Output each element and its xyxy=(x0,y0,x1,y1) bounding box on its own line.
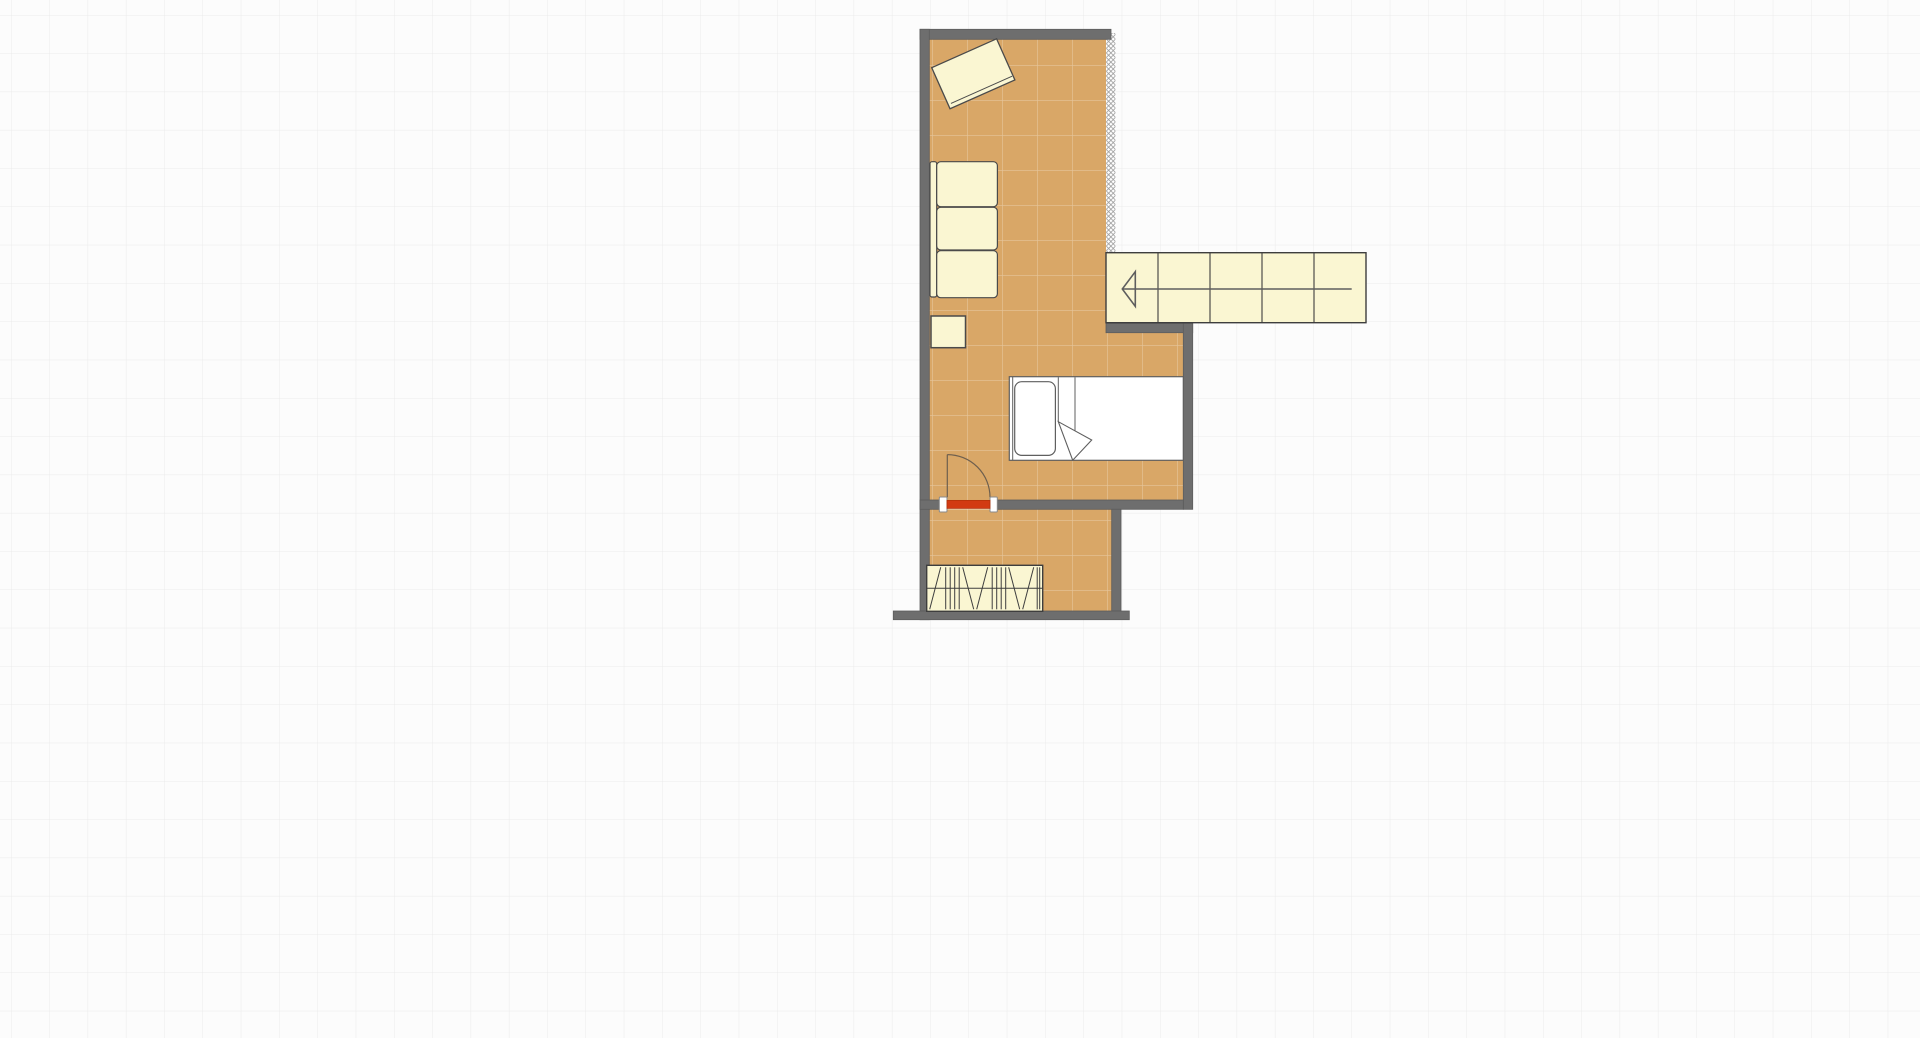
single-bed[interactable] xyxy=(1009,377,1183,461)
sofa-cushion-1 xyxy=(937,162,998,207)
door-leaf[interactable] xyxy=(947,500,990,508)
stairs[interactable] xyxy=(1106,253,1366,323)
sofa-back xyxy=(930,162,937,297)
door-jamb-1 xyxy=(939,497,947,512)
side-table[interactable] xyxy=(931,316,966,348)
wall-left[interactable] xyxy=(920,29,929,619)
wall-bottom[interactable] xyxy=(893,611,1129,620)
wall-under-stairs[interactable] xyxy=(1106,323,1193,332)
sofa-cushion-3 xyxy=(937,251,998,298)
door-jamb-2 xyxy=(990,497,997,512)
floorplan-canvas xyxy=(0,0,1920,1038)
wall-lower-right[interactable] xyxy=(1112,509,1121,611)
sofa-cushion-2 xyxy=(937,207,998,250)
floorplan-drawing xyxy=(0,0,1920,1038)
radiator[interactable] xyxy=(927,565,1043,611)
bed-pillow xyxy=(1015,382,1056,456)
wall-door-left[interactable] xyxy=(920,500,939,509)
sofa[interactable] xyxy=(930,162,997,298)
wall-door-right[interactable] xyxy=(997,500,1183,509)
wall-top[interactable] xyxy=(920,29,1111,39)
wall-alcove-right[interactable] xyxy=(1183,323,1192,509)
open-wall-edge xyxy=(1106,33,1115,253)
